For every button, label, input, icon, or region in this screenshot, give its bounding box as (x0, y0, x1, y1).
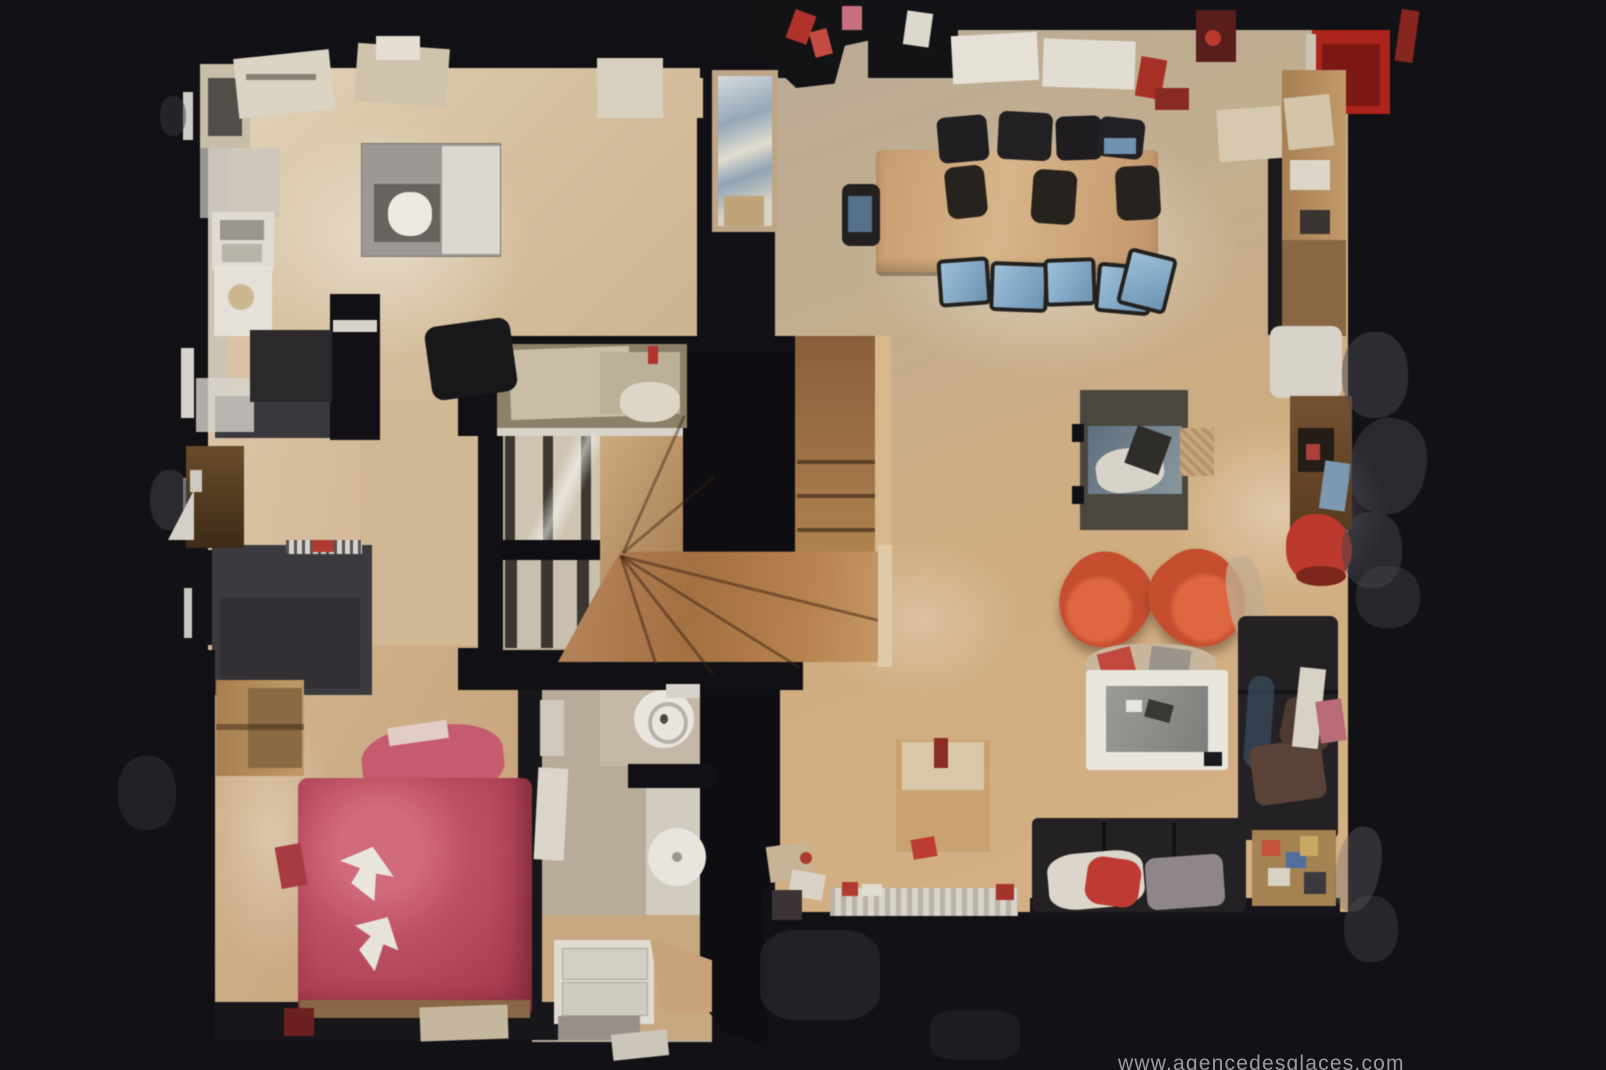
dark-chair-top-right-seat (1104, 138, 1136, 154)
artifact-right-1 (1342, 332, 1408, 418)
red-dot-top (1205, 30, 1221, 46)
artifact-bottom-2 (930, 1010, 1020, 1060)
wardrobe-shelf-line (216, 724, 304, 730)
kitchen-sink-basin-1 (220, 220, 264, 240)
sofa-pillow-gray (1144, 853, 1225, 910)
toilet-seat-ring (648, 702, 688, 744)
pink-item-entry (842, 6, 862, 30)
display-cabinet-base (724, 196, 764, 226)
vanity-drawer-2 (562, 982, 648, 1016)
hall-clutter-dark (772, 890, 802, 920)
kitchen-island-item (388, 192, 432, 236)
sideboard-white-box-1 (951, 32, 1039, 84)
fireplace-notch-1 (1072, 424, 1084, 442)
clutter-white (1268, 868, 1290, 886)
kitchen-island-white-top (442, 146, 500, 254)
radiator-white-item (862, 884, 882, 896)
toilet-drain-dot (660, 714, 668, 724)
bedroom-white-bits (540, 700, 564, 756)
radiator-red-2 (996, 884, 1014, 900)
bar-item-dark (1300, 210, 1330, 234)
bar-counter-lower (1282, 240, 1346, 336)
table-object-3 (1115, 165, 1162, 221)
white-chair-right (1270, 326, 1342, 398)
blue-chair-1 (936, 256, 991, 308)
blue-chair-3 (1043, 257, 1097, 307)
bar-item-white (1290, 160, 1330, 190)
dollhouse-view: www.agencedesglaces.com (0, 0, 1606, 1070)
red-item-top-2 (1155, 88, 1189, 110)
counter-haze (200, 148, 280, 218)
red-flag-corner (1394, 9, 1419, 63)
artifact-left-2 (118, 756, 176, 830)
sofa-blanket-red (1083, 854, 1143, 909)
entry-left-wall (697, 118, 711, 344)
top-shelf-line (246, 74, 316, 80)
dark-chair-top-2 (997, 111, 1053, 162)
toilet-tank (666, 684, 700, 698)
hall-radiator-red-item (312, 540, 334, 552)
end-chair-left-seat (848, 196, 872, 232)
clutter-dark (1304, 872, 1326, 894)
dining-table (876, 150, 1158, 272)
artifact-top-left (160, 96, 186, 136)
artifact-right-4 (1356, 566, 1420, 628)
bedroom-dark-red-corner (284, 1008, 314, 1036)
hall-red-item (910, 836, 937, 860)
landing-desk-white-item (620, 382, 680, 422)
blue-chair-2 (989, 261, 1049, 313)
office-chair (423, 316, 518, 401)
clutter-red (1262, 840, 1280, 856)
beige-slab-top (1216, 106, 1283, 162)
red-desk-chair-shadow (1296, 566, 1346, 586)
bedroom-left-wall (185, 650, 215, 1042)
log-basket (1180, 428, 1214, 476)
black-cabinet-paper (333, 320, 377, 332)
sideboard-white-box-2 (1042, 38, 1136, 89)
dark-chair-top-3 (1055, 115, 1103, 161)
artifact-right-wisp-2 (1344, 896, 1398, 962)
brown-cabinet-left (186, 446, 244, 548)
toilet-divider-wall (628, 764, 714, 788)
brown-cabinet-white-dot (190, 470, 202, 492)
bedroom-white-strip (534, 767, 569, 860)
brown-cabinet-red-dot (1306, 444, 1320, 460)
counter-white-low (196, 378, 254, 432)
top-white-bit (376, 36, 420, 60)
landing-desk-red-item (648, 346, 658, 364)
vanity-drawer-1 (562, 948, 648, 980)
stair-bottom-light-strip (878, 545, 892, 667)
radiator-red-1 (842, 882, 858, 896)
watermark: www.agencedesglaces.com (1118, 1052, 1438, 1070)
shower-drain (672, 852, 682, 862)
white-sliver-top (903, 10, 933, 47)
hall-red-bottle (934, 738, 948, 768)
left-window-2 (181, 348, 194, 418)
table-object-2 (1030, 169, 1078, 226)
hall-clutter-red-dot (800, 852, 812, 864)
corner-shelf-cream (597, 58, 663, 118)
clutter-gold (1300, 836, 1318, 856)
artifact-bottom-1 (760, 930, 880, 1020)
floorplan-canvas[interactable] (0, 0, 1606, 1070)
top-shelf-cream (233, 49, 335, 119)
black-cabinet (330, 294, 380, 440)
bedroom-closet-inner (220, 598, 360, 688)
dark-chair-top-1 (936, 114, 990, 164)
kitchen-dark-desk (250, 330, 332, 402)
coffee-table-corner-notch (1204, 752, 1222, 766)
bed (298, 778, 532, 1018)
bathroom-white-bit (611, 1029, 669, 1061)
stair-right-flight-treads (797, 430, 885, 566)
counter-bowl (228, 284, 254, 310)
fireplace-notch-2 (1072, 486, 1084, 504)
left-window-4 (184, 588, 192, 638)
coffee-table-item-white (1126, 700, 1142, 712)
stair-white-edge (497, 428, 683, 436)
bed-bench (419, 1004, 508, 1041)
radiator (830, 888, 1018, 916)
bar-item-beige (1283, 94, 1334, 151)
table-object-1 (943, 164, 988, 220)
kitchen-sink-basin-2 (222, 244, 262, 262)
